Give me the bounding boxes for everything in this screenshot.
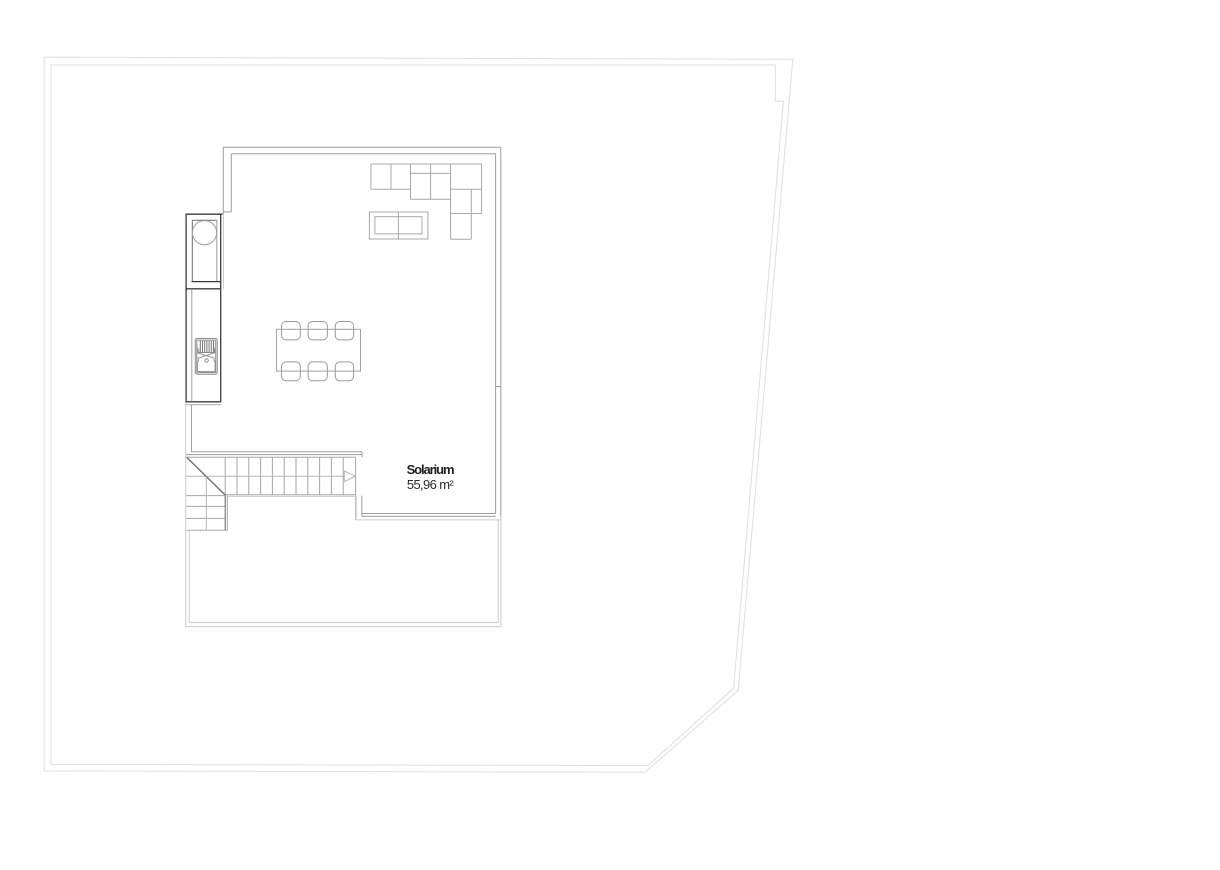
svg-text:55,96 m²: 55,96 m² [407,477,455,492]
svg-text:Solarium: Solarium [407,462,454,477]
